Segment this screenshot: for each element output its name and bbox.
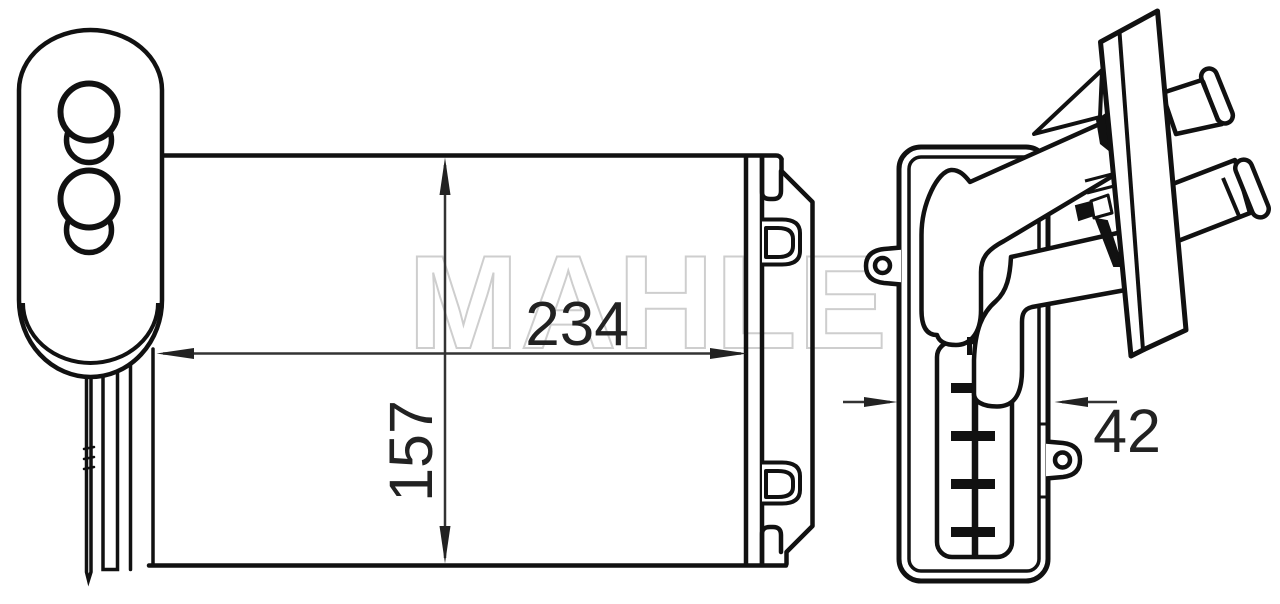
svg-text:157: 157 bbox=[377, 400, 445, 502]
svg-text:42: 42 bbox=[1093, 397, 1161, 465]
svg-text:234: 234 bbox=[525, 290, 628, 359]
svg-text:MAHLE: MAHLE bbox=[408, 229, 888, 377]
